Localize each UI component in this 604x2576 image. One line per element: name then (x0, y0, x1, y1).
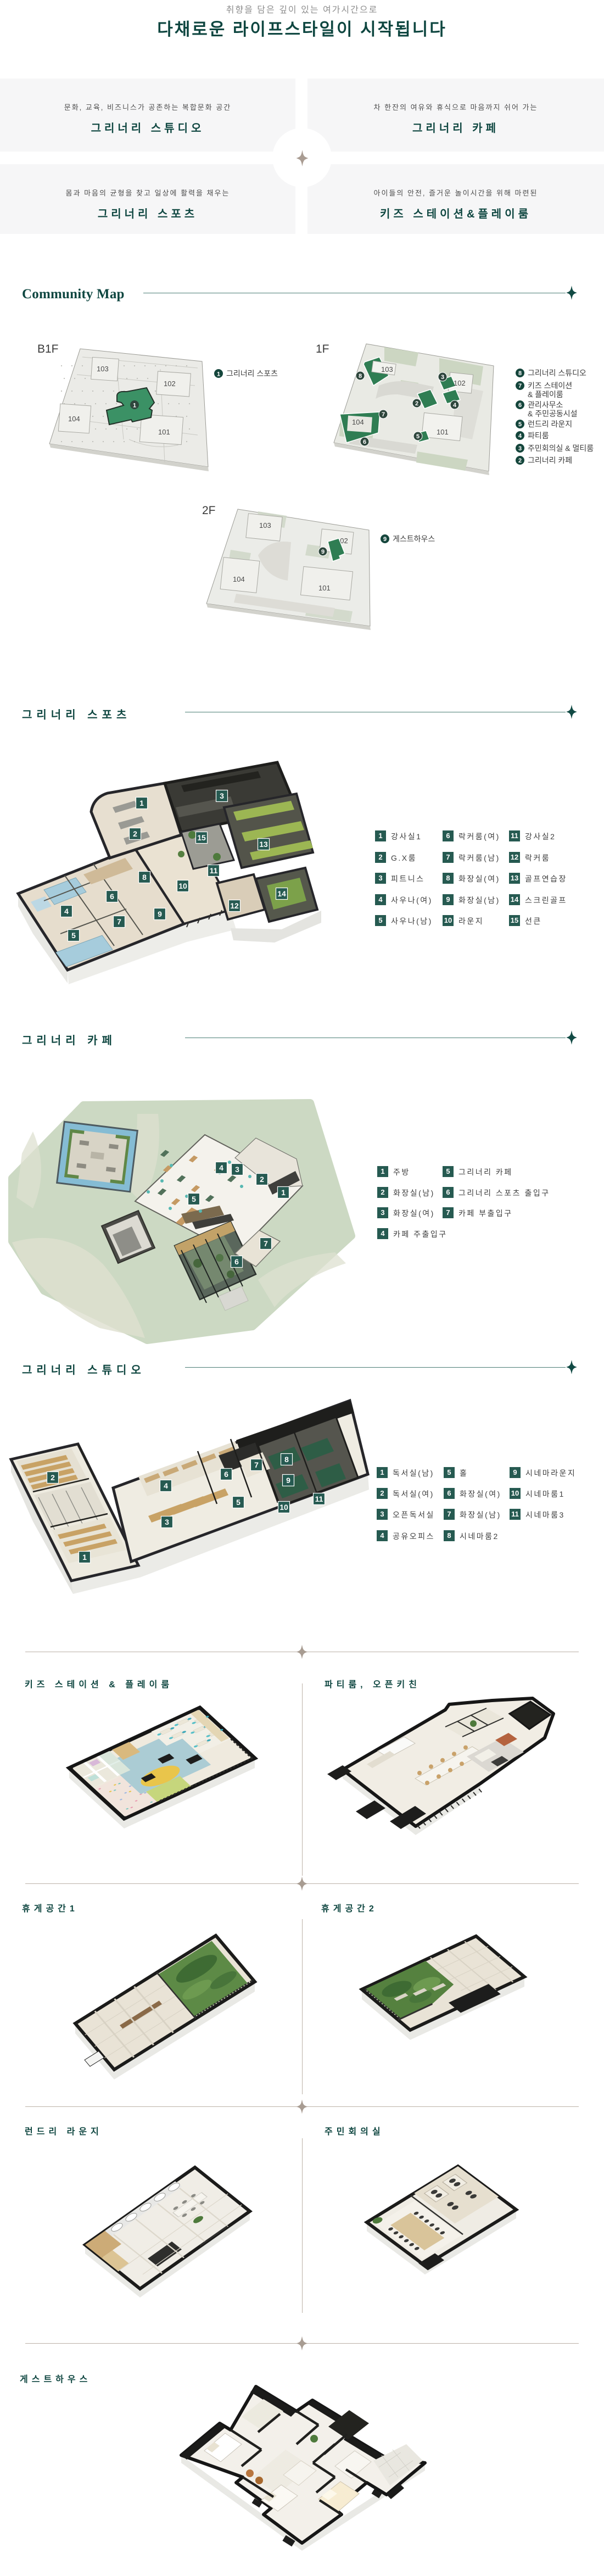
svg-text:4: 4 (64, 907, 69, 916)
svg-text:7: 7 (264, 1239, 268, 1248)
svg-text:관리사무소: 관리사무소 (528, 400, 563, 409)
svg-text:6: 6 (518, 402, 522, 409)
svg-text:2: 2 (133, 829, 137, 838)
svg-text:11: 11 (315, 1495, 323, 1503)
svg-text:104: 104 (68, 415, 80, 423)
svg-text:& 플레이룸: & 플레이룸 (528, 390, 563, 399)
svg-text:5: 5 (416, 433, 420, 440)
svg-text:1: 1 (133, 403, 136, 409)
svg-text:101: 101 (437, 428, 449, 436)
svg-text:2: 2 (518, 458, 522, 464)
svg-text:13: 13 (259, 840, 268, 849)
svg-text:그리너리 카페: 그리너리 카페 (528, 456, 572, 465)
svg-text:11: 11 (210, 866, 218, 875)
svg-text:3: 3 (441, 374, 444, 381)
svg-text:8: 8 (142, 873, 147, 882)
svg-text:9: 9 (286, 1476, 290, 1485)
svg-text:8: 8 (359, 373, 362, 380)
svg-text:5: 5 (518, 421, 522, 428)
svg-text:2: 2 (415, 400, 418, 407)
svg-text:1: 1 (217, 371, 220, 378)
svg-text:102: 102 (164, 380, 176, 388)
svg-text:7: 7 (117, 917, 121, 926)
svg-text:1: 1 (82, 1553, 87, 1562)
svg-text:2: 2 (260, 1175, 264, 1184)
svg-text:6: 6 (234, 1257, 239, 1266)
svg-text:10: 10 (279, 1503, 288, 1512)
svg-text:103: 103 (259, 521, 271, 529)
svg-text:런드리 라운지: 런드리 라운지 (528, 420, 572, 428)
svg-text:3: 3 (518, 445, 522, 452)
svg-text:1: 1 (281, 1188, 286, 1197)
svg-text:103: 103 (381, 365, 393, 373)
svg-text:15: 15 (197, 833, 206, 842)
svg-text:그리너리 스튜디오: 그리너리 스튜디오 (528, 369, 586, 377)
svg-text:파티룸: 파티룸 (528, 431, 549, 440)
svg-text:7: 7 (382, 411, 385, 418)
svg-text:그리너리 스포츠: 그리너리 스포츠 (226, 369, 278, 378)
svg-text:8: 8 (284, 1455, 289, 1464)
svg-text:3: 3 (165, 1518, 169, 1526)
svg-text:9: 9 (158, 910, 162, 918)
svg-text:104: 104 (233, 575, 245, 583)
svg-text:3: 3 (220, 791, 224, 800)
svg-text:103: 103 (97, 365, 109, 373)
svg-text:5: 5 (192, 1195, 196, 1203)
svg-text:3: 3 (235, 1165, 239, 1174)
svg-text:4: 4 (219, 1163, 223, 1172)
svg-text:6: 6 (110, 892, 114, 901)
svg-text:8: 8 (518, 370, 522, 377)
svg-text:101: 101 (158, 428, 170, 436)
svg-text:12: 12 (230, 901, 239, 910)
svg-text:4: 4 (453, 402, 457, 409)
svg-text:104: 104 (352, 418, 364, 426)
svg-text:2: 2 (51, 1473, 55, 1482)
svg-text:7: 7 (518, 383, 522, 389)
svg-text:7: 7 (254, 1460, 259, 1469)
svg-text:10: 10 (178, 882, 187, 890)
svg-text:14: 14 (277, 889, 286, 898)
svg-text:1: 1 (139, 799, 144, 807)
svg-text:6: 6 (224, 1470, 228, 1479)
svg-text:주민회의실 & 멀티룸: 주민회의실 & 멀티룸 (528, 444, 594, 453)
svg-text:9: 9 (321, 549, 325, 555)
svg-text:게스트하우스: 게스트하우스 (393, 534, 435, 543)
svg-text:& 주민공동시설: & 주민공동시설 (528, 409, 578, 418)
svg-text:4: 4 (518, 433, 522, 439)
svg-text:101: 101 (318, 584, 331, 592)
svg-text:102: 102 (454, 379, 466, 387)
svg-text:4: 4 (164, 1481, 168, 1490)
svg-text:5: 5 (71, 931, 76, 940)
svg-text:9: 9 (383, 536, 387, 543)
svg-text:6: 6 (363, 439, 366, 445)
svg-text:키즈 스테이션: 키즈 스테이션 (528, 381, 572, 390)
svg-text:5: 5 (236, 1498, 241, 1507)
